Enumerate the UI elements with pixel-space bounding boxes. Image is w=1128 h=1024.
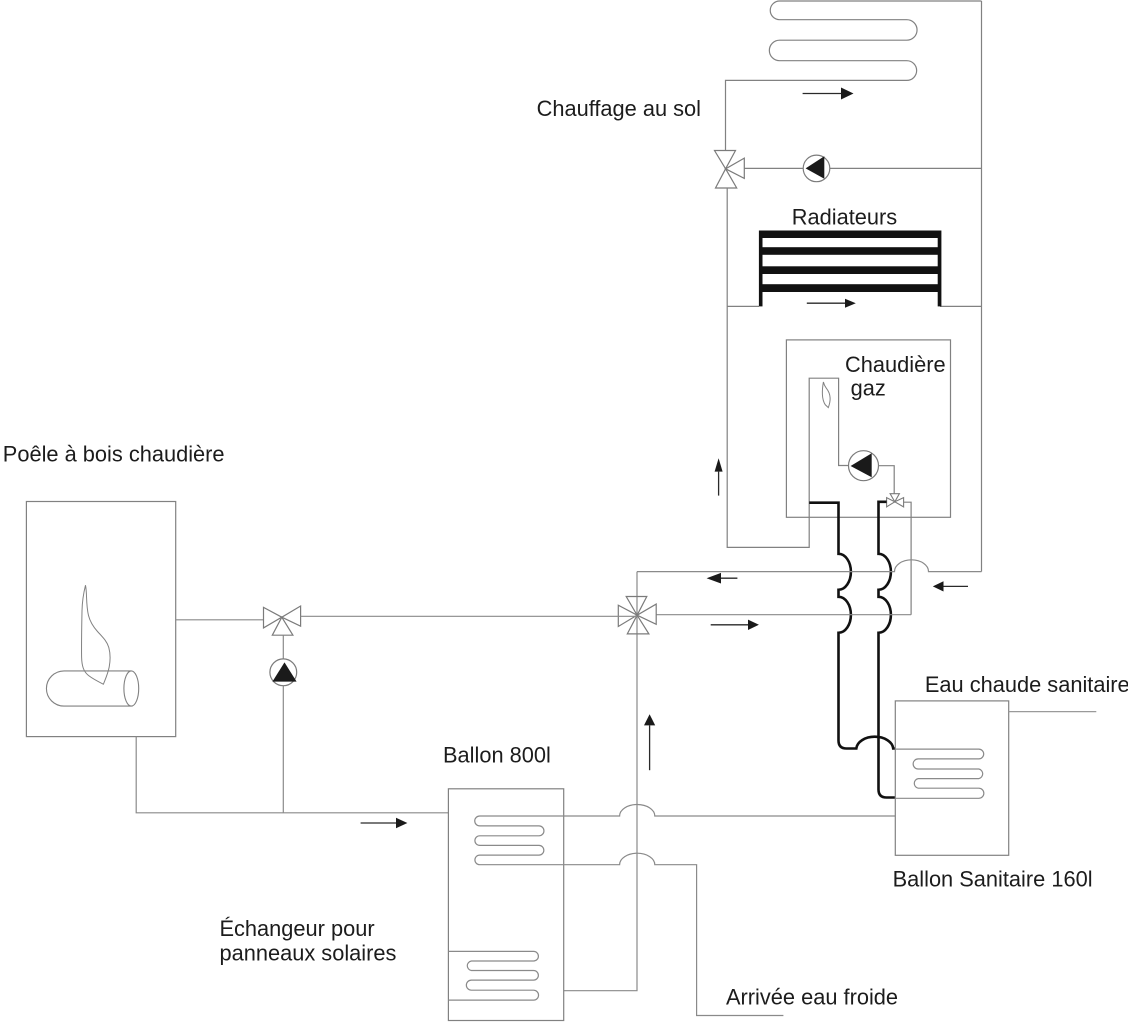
svg-text:panneaux solaires: panneaux solaires bbox=[220, 941, 397, 966]
svg-text:Arrivée eau froide: Arrivée eau froide bbox=[726, 984, 898, 1009]
svg-text:Eau chaude sanitaire: Eau chaude sanitaire bbox=[925, 672, 1128, 697]
svg-text:Ballon 800l: Ballon 800l bbox=[443, 742, 551, 767]
svg-text:Chauffage au sol: Chauffage au sol bbox=[537, 96, 701, 121]
svg-text:Échangeur pour: Échangeur pour bbox=[220, 916, 375, 941]
svg-text:Ballon Sanitaire 160l: Ballon Sanitaire 160l bbox=[893, 867, 1093, 892]
svg-text:Poêle à bois chaudière: Poêle à bois chaudière bbox=[3, 442, 225, 467]
svg-text:Chaudière: Chaudière bbox=[845, 352, 946, 377]
svg-text:gaz: gaz bbox=[851, 375, 886, 400]
svg-text:Radiateurs: Radiateurs bbox=[792, 205, 898, 230]
